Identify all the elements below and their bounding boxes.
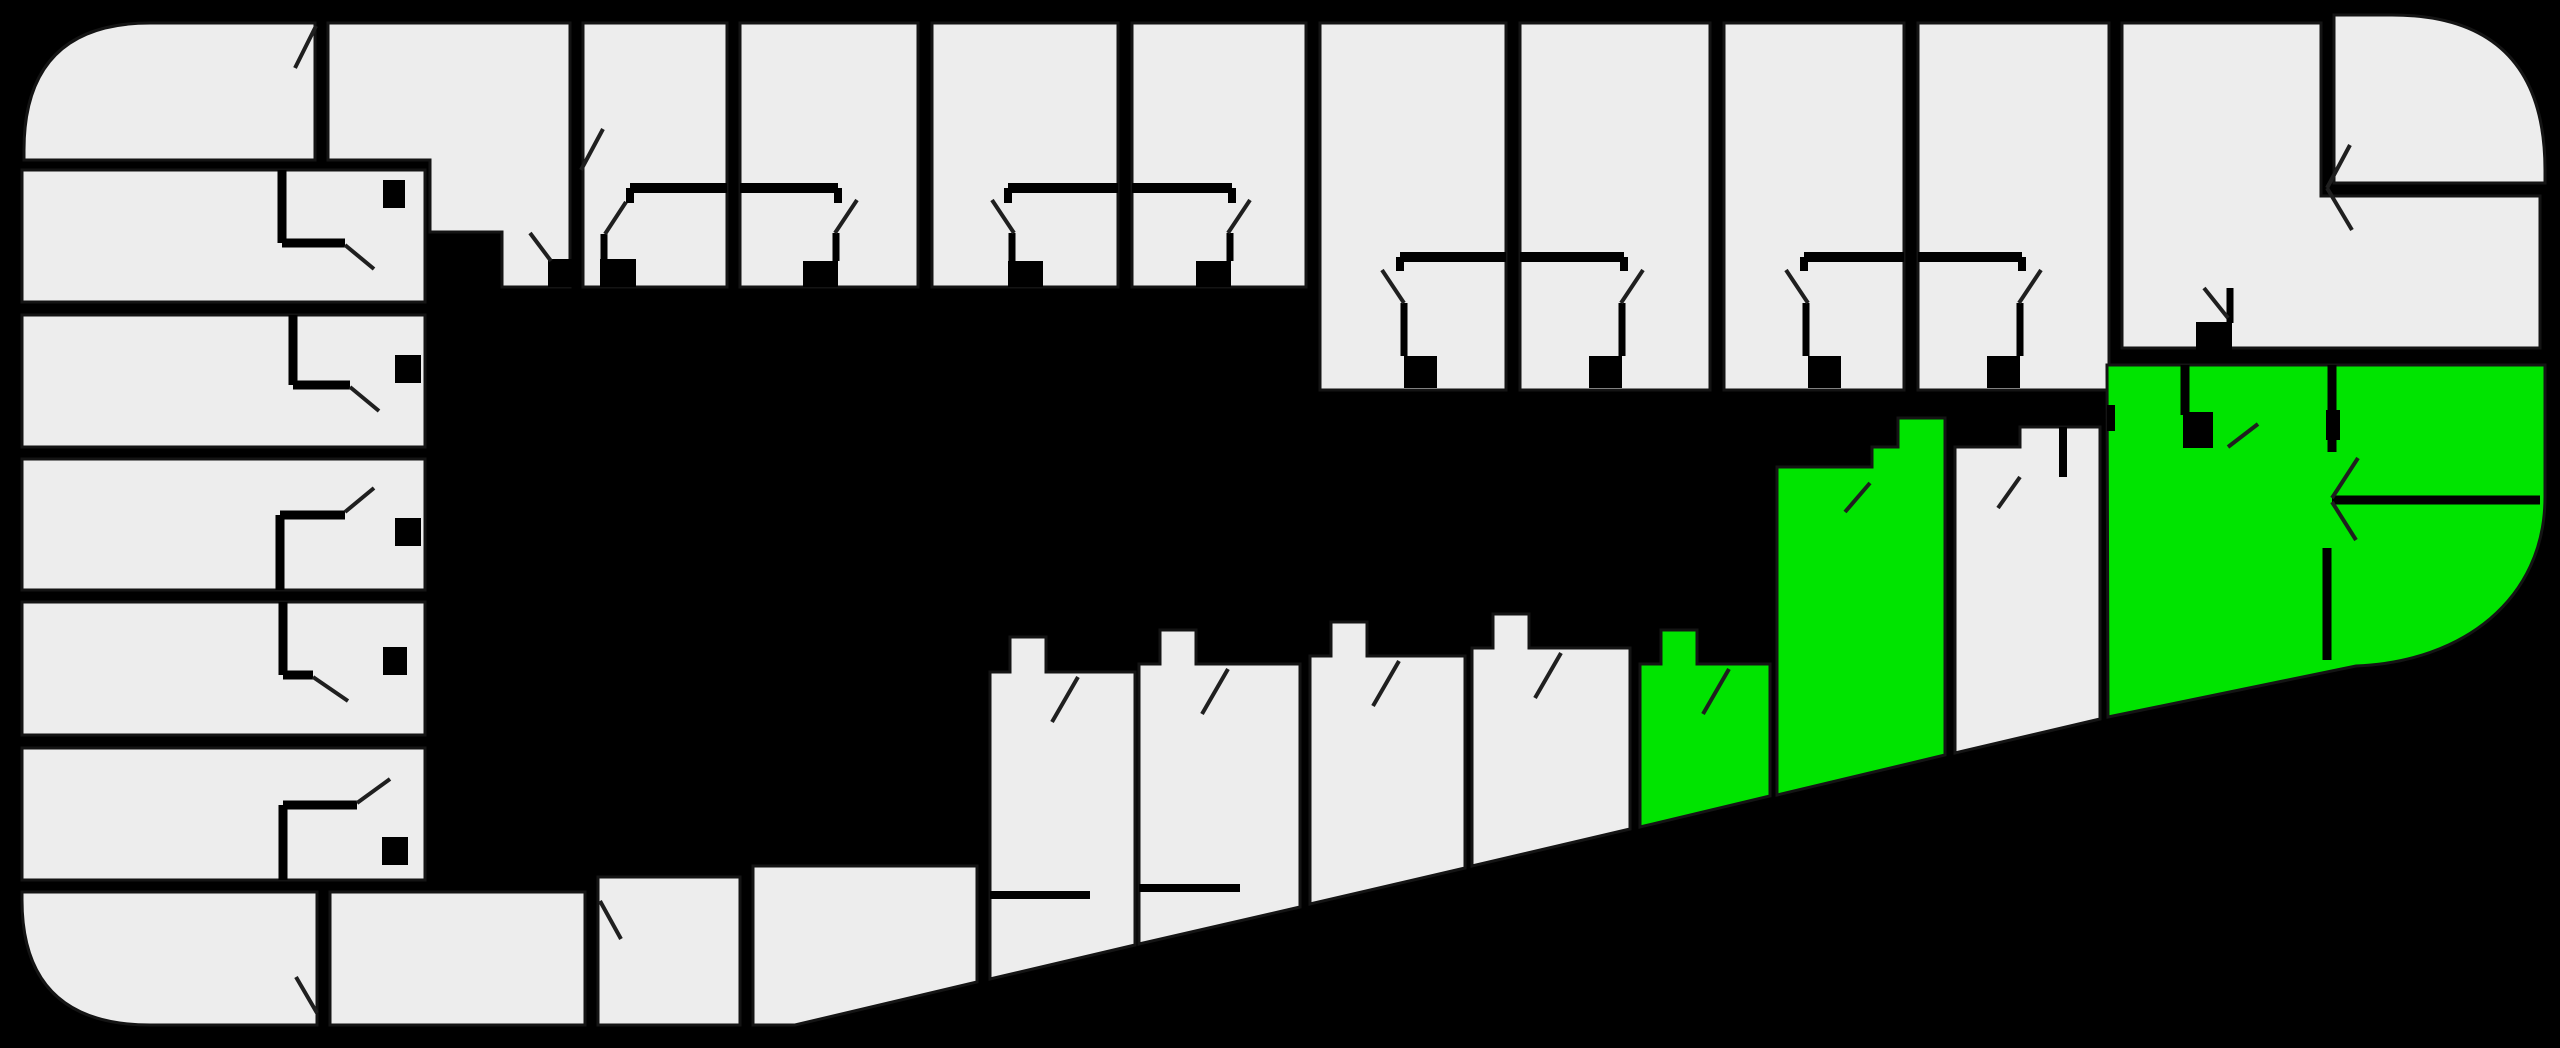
unit-T8[interactable] [1724,23,1904,390]
entry-notch [382,837,408,865]
entry-notch [1196,261,1231,287]
entry-notch [383,647,407,675]
entry-notch [2183,412,2213,448]
unit-L5[interactable] [22,602,425,735]
unit-L3[interactable] [22,315,425,447]
entry-notch [548,259,574,287]
unit-T11[interactable] [2334,15,2545,183]
unit-L1[interactable] [24,23,315,160]
entry-notch [1987,356,2020,388]
unit-C1[interactable] [990,637,1135,979]
entry-notch [395,355,421,383]
entry-notch [1589,356,1622,388]
entry-notch [1404,356,1437,388]
entry-notch [2107,405,2115,431]
unit-C3[interactable] [1310,622,1465,904]
unit-B1[interactable] [330,892,585,1025]
unit-L4[interactable] [22,459,425,590]
unit-T7[interactable] [1520,23,1710,390]
unit-T9[interactable] [1918,23,2109,390]
entry-notch [1008,261,1043,287]
unit-T4[interactable] [932,23,1118,287]
unit-L6[interactable] [22,748,425,880]
entry-notch [2326,410,2340,440]
entry-notch [1808,356,1841,388]
unit-T6[interactable] [1320,23,1506,390]
unit-M1-available[interactable] [1640,630,1770,827]
entry-notch [395,518,421,546]
unit-M2-available[interactable] [1777,418,1945,795]
floor-plan-svg [0,0,2560,1048]
unit-D1[interactable] [1955,427,2100,753]
floor-plan-viewport [0,0,2560,1048]
entry-notch [600,259,636,287]
unit-L7[interactable] [22,892,317,1025]
entry-notch [383,180,405,208]
unit-L2[interactable] [22,170,425,302]
unit-T3[interactable] [740,23,918,287]
unit-B2[interactable] [598,877,740,1025]
entry-notch [803,261,838,287]
unit-C4[interactable] [1472,614,1630,866]
entry-notch [2196,322,2232,350]
unit-T5[interactable] [1132,23,1306,287]
unit-B3[interactable] [753,866,977,1025]
unit-C2[interactable] [1139,630,1300,944]
